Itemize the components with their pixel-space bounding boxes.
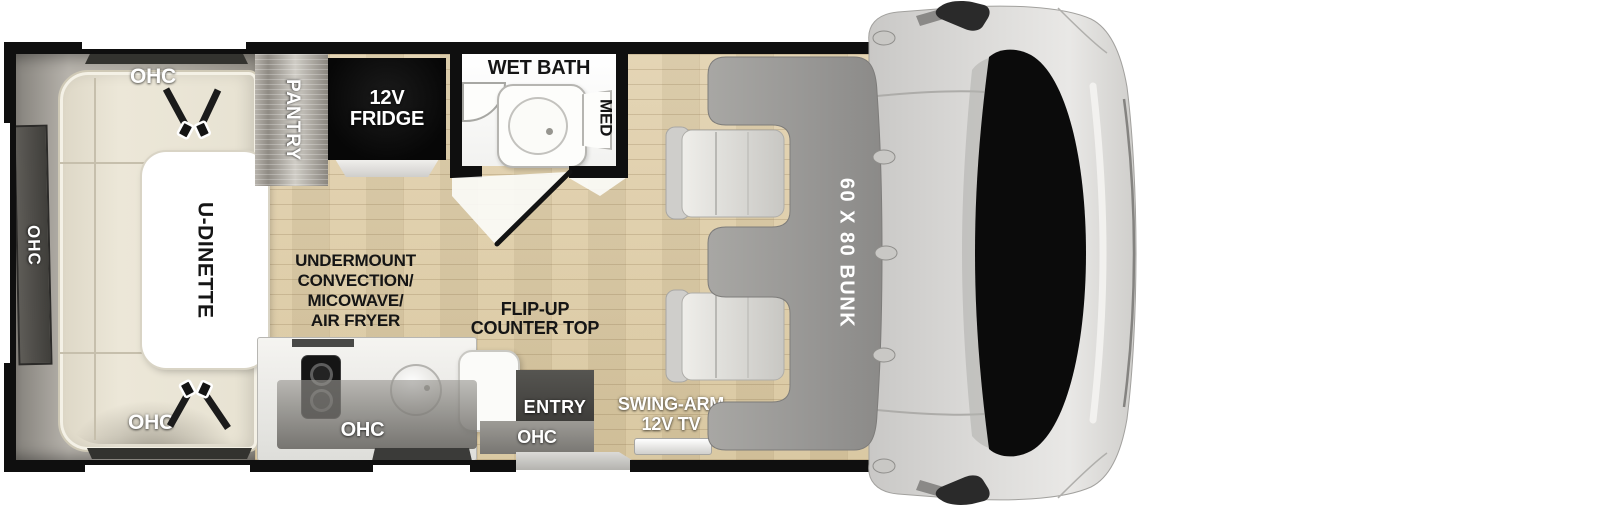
bath-door-panel <box>452 172 568 246</box>
seatbelt-icons-top <box>166 89 218 139</box>
seatbelt-icons-bottom <box>170 380 228 428</box>
overlay-details <box>0 0 1600 506</box>
rv-floorplan: OHC U-DINETTE OHC OHC PANTRY 12V FRIDGE … <box>0 0 1600 506</box>
bath-door-skirt <box>569 178 626 196</box>
